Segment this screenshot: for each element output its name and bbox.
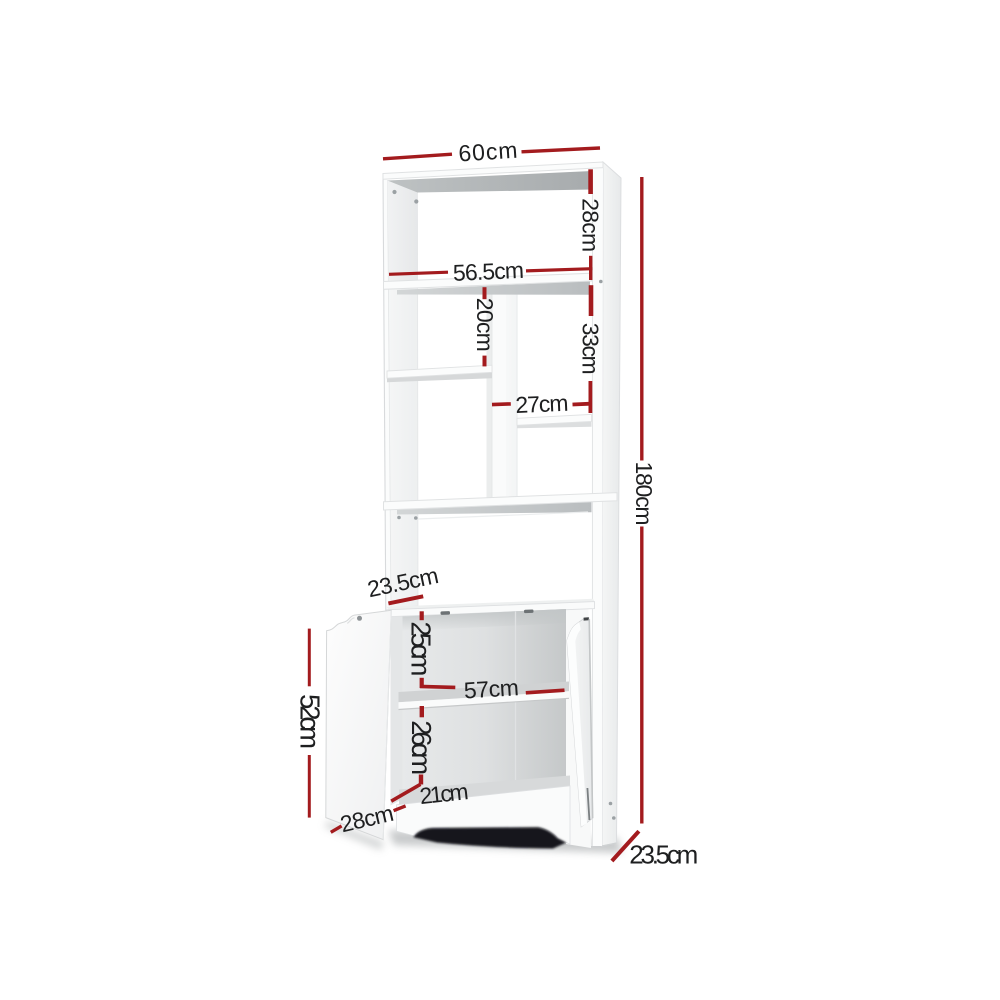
svg-text:56.5cm: 56.5cm [452,257,524,286]
svg-text:27cm: 27cm [515,390,569,418]
svg-text:28cm: 28cm [578,198,604,252]
svg-text:180cm: 180cm [631,462,657,526]
svg-text:21cm: 21cm [418,778,469,809]
svg-text:20cm: 20cm [472,298,498,352]
svg-text:57cm: 57cm [463,674,519,703]
svg-text:33cm: 33cm [578,323,604,375]
svg-text:60cm: 60cm [458,137,519,167]
svg-text:52cm: 52cm [295,694,326,749]
svg-text:26cm: 26cm [406,720,437,775]
svg-text:25cm: 25cm [406,621,437,676]
svg-text:23.5cm: 23.5cm [629,839,698,869]
